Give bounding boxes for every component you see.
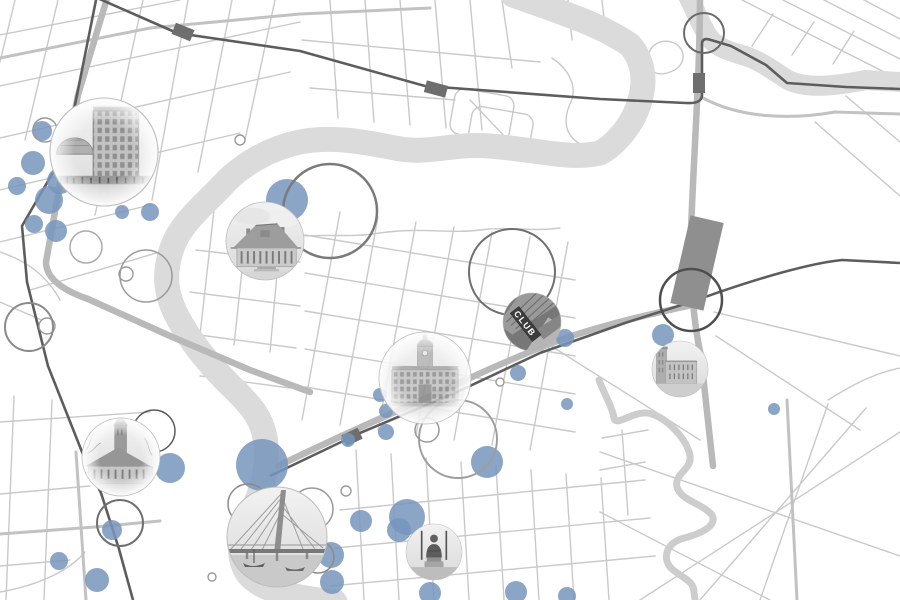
path-shape (0, 0, 15, 62)
path-shape (828, 368, 900, 400)
path-shape (531, 470, 539, 600)
path-shape (601, 478, 609, 600)
poi-bubble[interactable] (378, 424, 394, 440)
path-shape (864, 0, 900, 19)
station-rect (424, 80, 448, 97)
photo-marker-statue-monument[interactable] (406, 524, 462, 580)
poi-bubble[interactable] (45, 220, 67, 242)
poi-bubble[interactable] (102, 520, 122, 540)
creek (599, 380, 713, 600)
path-shape (6, 396, 14, 600)
g-shape (670, 215, 723, 310)
photo-clip-group (82, 414, 160, 496)
photo-clip-group (503, 293, 561, 351)
roundabout-circle (235, 135, 245, 145)
transit-station-marker (424, 80, 448, 97)
roundabout-circle (496, 378, 504, 386)
poi-bubble[interactable] (35, 186, 63, 214)
photo-marker-club-building[interactable] (503, 293, 561, 351)
path-shape (700, 408, 866, 600)
path-shape (330, 556, 655, 586)
poi-bubble[interactable] (510, 365, 526, 381)
poi-bubble[interactable] (505, 581, 527, 600)
path-shape (714, 312, 900, 356)
photo-marker-domed-hall[interactable] (379, 330, 471, 424)
path-shape (302, 40, 540, 62)
path-shape (622, 430, 628, 515)
photo-marker-heritage-house[interactable] (226, 202, 304, 280)
photo-marker-office-building[interactable] (50, 98, 158, 206)
highlight-ring (70, 231, 102, 263)
photo-clip-group (227, 487, 327, 587)
photo-clip-group (226, 202, 304, 280)
path-shape (815, 122, 900, 196)
poi-bubble[interactable] (25, 215, 43, 233)
photo-clip-group (406, 524, 462, 580)
photo-fade-overlay (82, 418, 160, 496)
path-shape (76, 452, 86, 600)
rail-yard-layer (670, 215, 723, 310)
photo-marker-brick-school[interactable] (652, 341, 708, 397)
path-shape (0, 486, 90, 494)
map-canvas: CLUB (0, 0, 900, 600)
poi-bubble[interactable] (141, 203, 159, 221)
path-shape (0, 552, 85, 592)
path-shape (340, 480, 645, 510)
path-shape (44, 400, 52, 600)
poi-bubble[interactable] (387, 518, 411, 542)
path-shape (502, 0, 512, 68)
photo-fade-overlay (379, 332, 471, 424)
railway-north (95, 0, 900, 103)
path-shape (703, 98, 900, 116)
path-shape (846, 96, 900, 142)
poi-bubble[interactable] (320, 570, 344, 594)
poi-bubble[interactable] (350, 510, 372, 532)
path-shape (752, 14, 773, 46)
map-stage: CLUB (0, 0, 900, 600)
path-shape (305, 235, 575, 280)
path-shape (400, 0, 410, 125)
path-shape (566, 474, 574, 600)
poi-bubble[interactable] (561, 398, 573, 410)
path-shape (552, 58, 584, 146)
roundabout-circle (208, 573, 216, 581)
path-shape (600, 452, 900, 556)
path-shape (435, 0, 446, 128)
path-shape (200, 210, 214, 335)
path-shape (335, 518, 650, 548)
path-shape (824, 0, 900, 39)
poi-bubble[interactable] (341, 433, 355, 447)
photo-marker-layer (50, 98, 708, 587)
rail-yard-block (670, 215, 723, 310)
club-photo (503, 293, 561, 351)
poi-bubble[interactable] (419, 582, 441, 600)
path-shape (461, 462, 469, 600)
railway-west (22, 0, 133, 600)
poi-bubble[interactable] (8, 177, 26, 195)
path-shape (190, 292, 300, 306)
poi-bubble[interactable] (85, 568, 109, 592)
photo-clip-group (652, 341, 708, 397)
photo-marker-cable-bridge[interactable] (227, 487, 327, 587)
path-shape (600, 512, 770, 600)
photo-clip-group (50, 98, 158, 206)
path-shape (365, 0, 374, 122)
photo-marker-church[interactable] (82, 414, 160, 496)
path-shape (760, 404, 828, 600)
transit-station-marker (693, 73, 705, 93)
path-shape (245, 0, 275, 140)
station-rect (693, 73, 705, 93)
photo-clip-group (379, 330, 471, 424)
poi-bubble[interactable] (768, 403, 780, 415)
path-shape (602, 430, 648, 438)
roundabout-circle (341, 486, 351, 496)
poi-bubble[interactable] (21, 151, 45, 175)
poi-bubble[interactable] (50, 552, 68, 570)
photo-fade-overlay (50, 98, 158, 206)
poi-bubble[interactable] (115, 205, 129, 219)
poi-bubble[interactable] (236, 439, 288, 491)
